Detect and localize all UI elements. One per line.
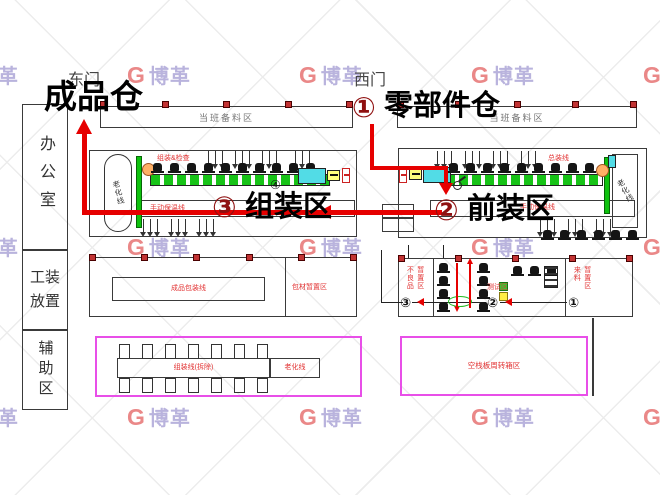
rework-step-2: ② (487, 296, 498, 309)
watermark-logo: G博革 (299, 402, 363, 431)
removed-aging-line-label: 老化线 (285, 364, 306, 372)
removed-assembly-line-label: 组装线(拆除) (174, 364, 214, 372)
empty-pallet-zone: 空栈板周转箱区 (400, 336, 588, 396)
flow-arrow-down-to-step2 (439, 183, 453, 195)
test-flow-line-1 (456, 263, 458, 308)
removed-line-tabs-bottom (119, 378, 268, 393)
parts-warehouse-label: 零部件仓 (384, 92, 500, 121)
right-wall-segment (592, 318, 594, 396)
flow-step1-number: ① (352, 94, 376, 122)
rework-step-3: ③ (400, 296, 411, 309)
flow-step3-number: ③ (212, 194, 237, 223)
watermark-logo: G博革 (0, 232, 19, 261)
staging-left-label: 包材暂置区 (292, 284, 327, 292)
rework-arrow-a (417, 298, 424, 306)
defect-staging-line2: 暂置区 (415, 266, 423, 290)
flow-line-step2-down (444, 168, 448, 184)
rack-icon (544, 266, 558, 288)
test-flow-line-2 (469, 263, 471, 308)
pillar-row-mid-left (89, 254, 357, 261)
incoming-staging-label: 来料 暂置区 (572, 266, 591, 290)
removed-assembly-line: 组装线(拆除) (117, 358, 270, 378)
right-line-name: 总装线 (548, 155, 569, 163)
small-tester-right (608, 155, 616, 168)
station-number-icon: ④ (270, 179, 281, 191)
flow-line-step1-right (370, 166, 448, 170)
defect-staging-line1: 不良品 (405, 266, 413, 290)
empty-pallet-zone-label: 空栈板周转箱区 (468, 362, 521, 370)
panel-icon-left (342, 168, 350, 183)
auxiliary-label: 辅助区 (35, 340, 56, 400)
conveyor-right (445, 174, 603, 186)
assembly-area-label: 组装区 (245, 193, 332, 222)
control-box-left (327, 170, 340, 181)
removed-line-tabs-top (119, 344, 268, 359)
flow-line-vertical-left (82, 133, 87, 215)
front-assembly-area-label: 前装区 (467, 195, 554, 224)
watermark-logo: G博革 (0, 60, 19, 89)
defect-staging-label: 不良品 暂置区 (405, 266, 424, 290)
packing-line-label: 成品包装线 (171, 285, 206, 293)
workstations-left (153, 163, 315, 171)
aisle-table-bottom (382, 218, 414, 232)
office-room: 办公室 (22, 104, 68, 250)
control-box-right (409, 169, 422, 180)
rework-step-1: ① (568, 296, 579, 309)
pallet-jack-icon (453, 181, 462, 190)
prep-left-label: 当班备料区 (199, 111, 254, 124)
watermark-logo: G博革 (643, 402, 660, 431)
tooling-label: 工装放置 (28, 266, 62, 314)
test-area-label: 测试区 (487, 284, 508, 292)
test-machine-left (298, 168, 326, 184)
removed-aging-line: 老化线 (270, 358, 320, 378)
left-line-name: 组装&检查 (157, 155, 190, 163)
rework-divider-2 (565, 258, 566, 317)
watermark-logo: G博革 (127, 402, 191, 431)
workstations-right (449, 163, 594, 171)
packing-zone-divider (285, 257, 286, 317)
aging-line-left-label: 老化线 (110, 179, 127, 206)
watermark-logo: G博革 (471, 402, 535, 431)
tooling-room: 工装放置 (22, 250, 68, 330)
material-drop-arrows (143, 219, 158, 235)
rework-divider-1 (433, 258, 434, 317)
flow-arrow-up-to-finished (76, 119, 92, 134)
west-gate-label: 西门 (354, 66, 386, 90)
rework-arrow-b (505, 298, 512, 306)
watermark-logo: G博革 (0, 402, 19, 431)
test-stations-col-a (439, 263, 448, 310)
flow-line-step1-down (370, 124, 374, 170)
auxiliary-room: 辅助区 (22, 330, 68, 410)
packing-line-box: 成品包装线 (112, 277, 265, 301)
aging-buffer-left (136, 156, 142, 228)
finished-goods-warehouse-label: 成品仓 (44, 80, 143, 113)
pillar-row-mid-right (398, 255, 633, 262)
factory-layout-diagram: 办公室 工装放置 辅助区 当班备料区 当班备料区 东门 西门 成品仓 ① 零部件… (0, 0, 660, 495)
incoming-staging-line2: 暂置区 (582, 266, 590, 290)
watermark-logo: G博革 (643, 60, 660, 89)
benches-right (543, 230, 637, 238)
watermark-logo: G博革 (471, 60, 535, 89)
material-drop-arrows (171, 219, 186, 235)
aisle-connector-v (381, 250, 382, 303)
flow-step2-number: ② (434, 197, 459, 226)
incoming-staging-line1: 来料 (572, 266, 580, 290)
office-label: 办公室 (33, 135, 57, 219)
panel-icon-right (399, 168, 407, 183)
aging-line-left: 老化线 (104, 154, 132, 232)
